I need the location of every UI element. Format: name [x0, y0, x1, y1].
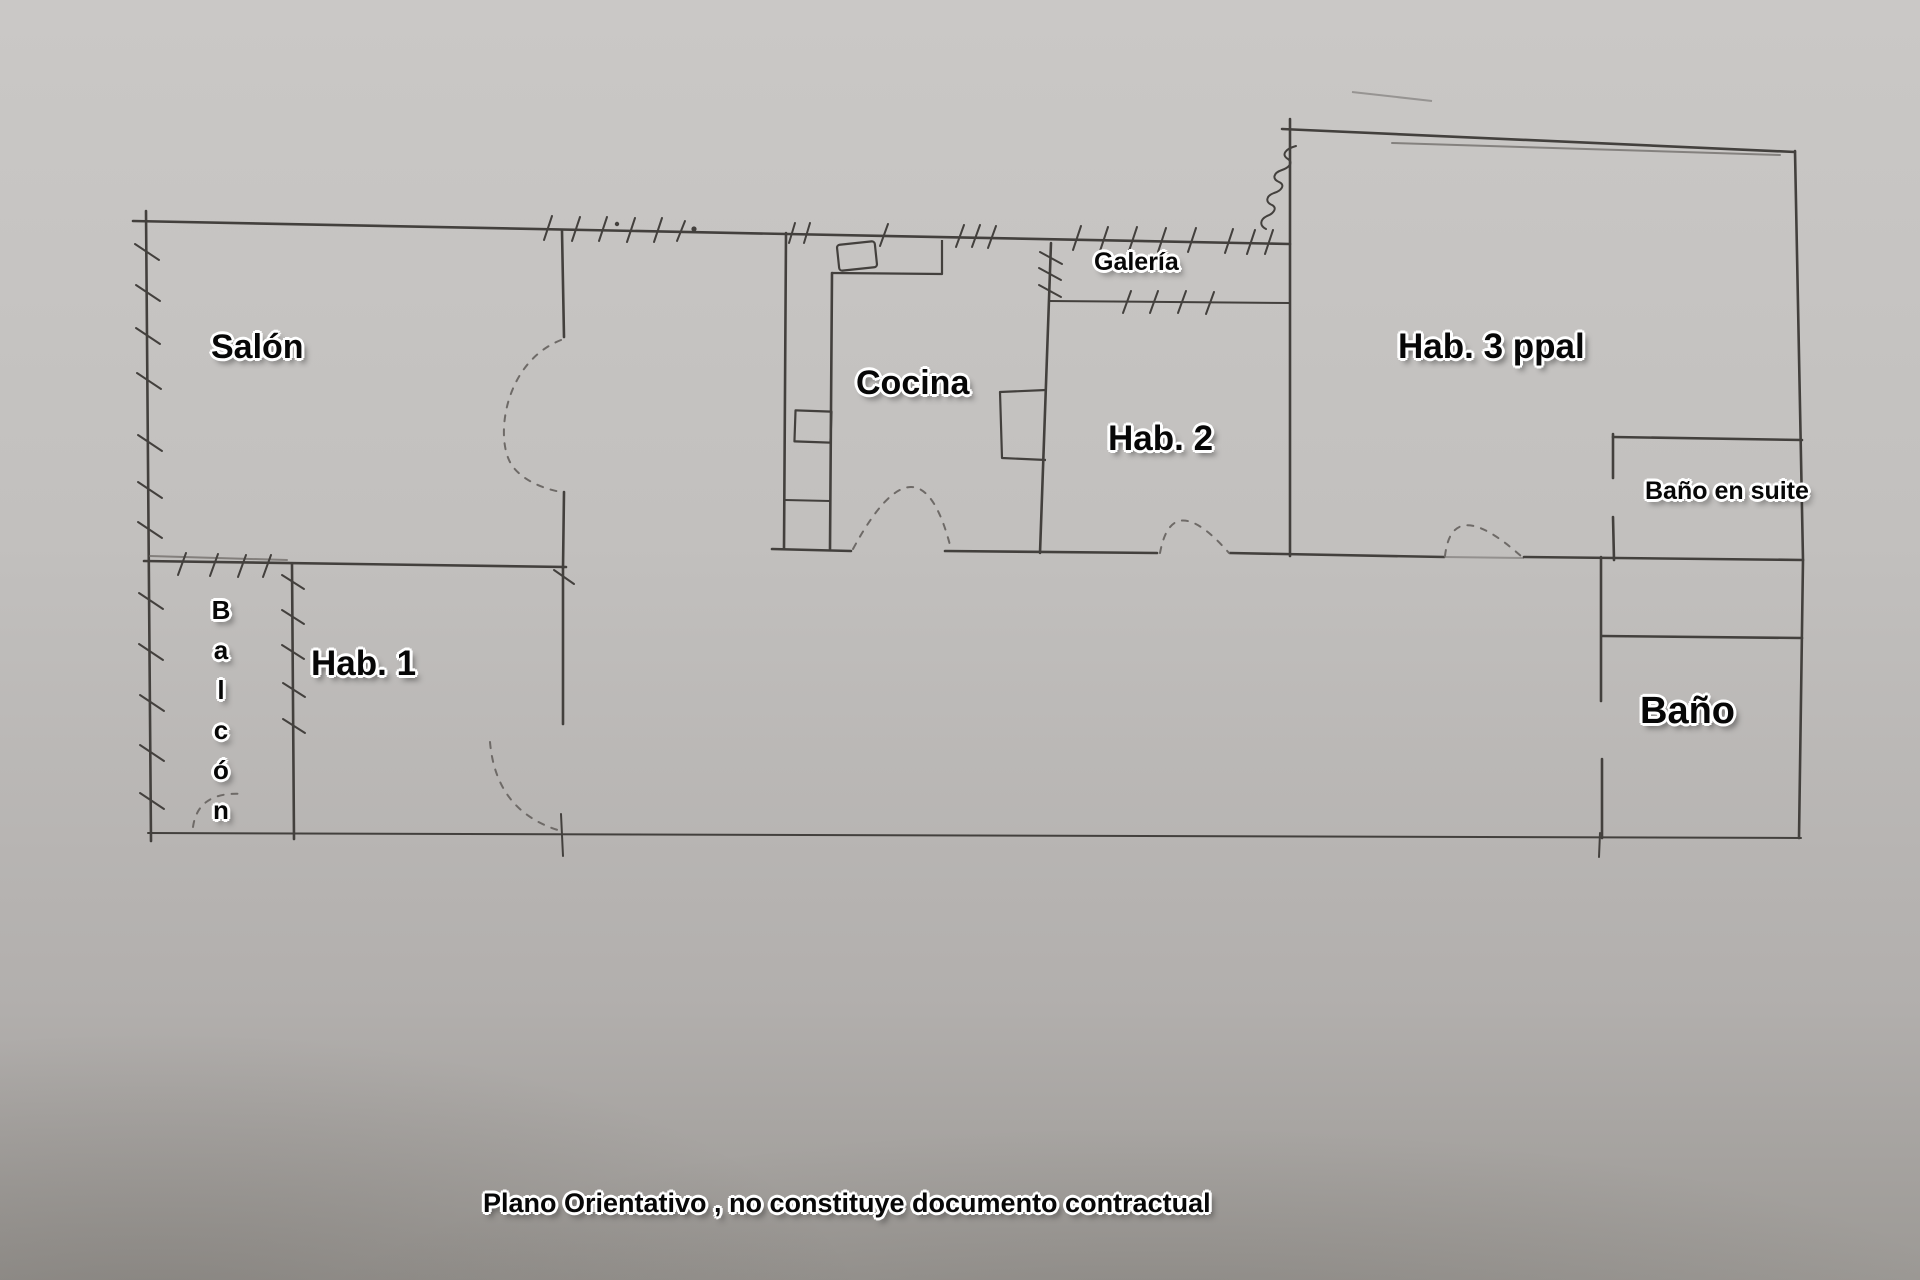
outer-walls — [133, 129, 1803, 841]
kitchen-appliance — [794, 410, 831, 442]
window-ticks — [135, 216, 1273, 809]
wall-corridor-3 — [1524, 557, 1803, 560]
wall-corridor-2 — [1230, 553, 1444, 557]
window-tick — [956, 225, 964, 247]
wall-bano-top — [1602, 636, 1802, 638]
room-label-bano-suite: Baño en suite — [1645, 477, 1809, 506]
interior-walls — [144, 119, 1803, 857]
wall-bottom — [148, 833, 1801, 838]
floorplan-drawing — [0, 0, 1920, 1280]
wall-hab3-top — [1282, 129, 1795, 152]
window-tick — [804, 223, 810, 243]
wall-cocina-left-outer — [784, 233, 786, 549]
window-tick — [972, 225, 980, 247]
hatch-tick — [140, 745, 164, 761]
kitchen-sink — [837, 241, 878, 271]
window-tick — [1188, 228, 1196, 252]
wall-salon-bottom — [144, 561, 566, 567]
window-tick — [1265, 230, 1273, 254]
wall-left — [146, 211, 151, 841]
window-tick — [1225, 229, 1233, 253]
floorplan-canvas: Salón Cocina Galería Hab. 2 Hab. 3 ppal … — [0, 0, 1920, 1280]
room-label-balcon: B a l c ó n — [204, 590, 238, 830]
hab2-door-arc — [1160, 521, 1229, 554]
wall-top-main — [133, 221, 1290, 244]
scribbles — [1261, 92, 1432, 229]
salon-door-arc — [504, 340, 561, 492]
hatch-tick — [139, 593, 163, 609]
wall-cocina-left-rung — [785, 500, 830, 501]
pencil-dot — [615, 222, 619, 226]
wall-salon-right-upper — [562, 231, 564, 337]
hatch-tick — [140, 695, 164, 711]
hab2-wall-appliance — [1000, 390, 1046, 460]
hatch-tick — [138, 482, 162, 498]
room-label-bano: Baño — [1640, 690, 1735, 733]
hatch-tick — [138, 435, 162, 451]
wall-cocina-bottom-cap — [772, 549, 851, 551]
hatch-tick — [137, 373, 161, 389]
window-tick — [1073, 226, 1081, 250]
room-label-hab1: Hab. 1 — [311, 644, 416, 684]
hatch-tick — [263, 555, 271, 577]
room-label-cocina: Cocina — [856, 364, 969, 403]
hall-door-arc — [853, 487, 951, 549]
room-label-hab3: Hab. 3 ppal — [1398, 327, 1585, 367]
door-arcs — [193, 340, 1522, 831]
room-label-salon: Salón — [211, 328, 304, 367]
wall-banosuite-left-lower — [1613, 517, 1614, 560]
wall-salon-right-lower — [563, 492, 564, 568]
wall-balcon-right — [292, 564, 294, 839]
wall-corridor-1 — [945, 551, 1157, 553]
wall-banosuite-top — [1613, 437, 1802, 440]
hatch-tick — [136, 285, 160, 301]
wall-corridor-threshold — [1444, 557, 1524, 558]
wall-galeria-bottom — [1049, 301, 1290, 303]
hab3-door-arc — [1445, 525, 1522, 557]
hatch-tick — [139, 644, 163, 660]
hab1-door-arc — [490, 742, 561, 831]
wall-hab1-bottom-tick — [561, 814, 563, 856]
hatch-tick — [138, 522, 162, 538]
wall-bano-left-bottom-tick — [1599, 833, 1600, 857]
footer-disclaimer: Plano Orientativo , no constituye docume… — [483, 1188, 1211, 1219]
pencil-dot — [691, 226, 696, 231]
room-label-hab2: Hab. 2 — [1108, 419, 1213, 459]
room-label-galeria: Galería — [1094, 248, 1179, 277]
window-tick — [654, 218, 662, 242]
wall-balcon-top-double-trace — [150, 556, 287, 560]
stray-scratch — [1352, 92, 1432, 101]
